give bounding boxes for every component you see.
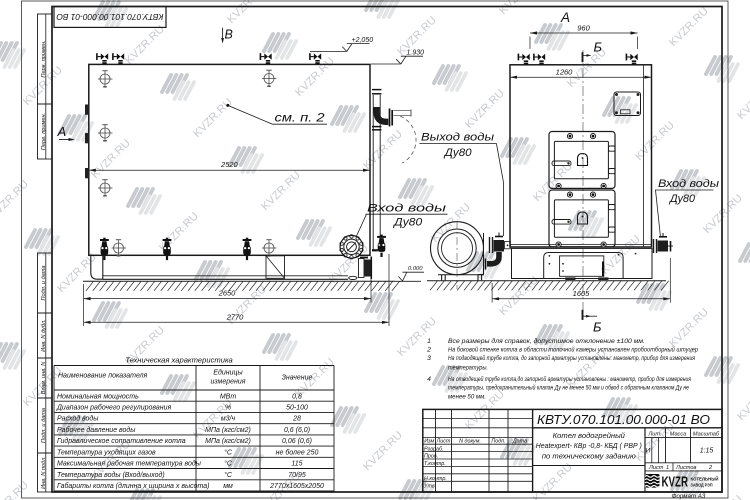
svg-text:Б: Б xyxy=(594,40,603,55)
svg-text:0,8: 0,8 xyxy=(292,393,302,400)
svg-text:+2,050: +2,050 xyxy=(352,37,374,44)
svg-text:Лист: Лист xyxy=(436,439,451,445)
svg-text:МПа (кгс/см2): МПа (кгс/см2) xyxy=(205,427,251,434)
svg-text:А: А xyxy=(57,124,67,139)
svg-text:Дата: Дата xyxy=(512,439,527,445)
svg-text:KVZR: KVZR xyxy=(662,475,689,491)
svg-text:Разраб.: Разраб. xyxy=(424,446,444,452)
svg-text:2: 2 xyxy=(426,347,431,354)
svg-text:Инв. N подл.: Инв. N подл. xyxy=(41,456,47,489)
svg-text:50-100: 50-100 xyxy=(286,405,308,412)
svg-text:Листов: Листов xyxy=(675,465,696,471)
svg-text:0,06 (0,6): 0,06 (0,6) xyxy=(282,438,312,445)
svg-text:мм: мм xyxy=(223,483,233,490)
svg-text:1: 1 xyxy=(427,338,431,345)
svg-text:Подп. и дата: Подп. и дата xyxy=(41,408,47,443)
svg-text:Изм: Изм xyxy=(424,439,434,445)
svg-text:Максимальная рабочая температу: Максимальная рабочая температура воды xyxy=(57,460,202,468)
svg-text:115: 115 xyxy=(291,461,302,468)
svg-text:Перв. примен.: Перв. примен. xyxy=(41,40,47,77)
svg-text:Габариты котла (длинна х ширин: Габариты котла (длинна х ширина х высота… xyxy=(57,482,210,490)
svg-text:Лит.: Лит. xyxy=(647,431,661,437)
svg-text:Б: Б xyxy=(593,320,602,335)
svg-text:Масштаб: Масштаб xyxy=(693,431,720,437)
svg-text:КВТУ.070.101.00.000-01 ВО: КВТУ.070.101.00.000-01 ВО xyxy=(56,12,164,21)
svg-text:N докум.: N докум. xyxy=(459,439,481,445)
svg-text:Подп. и дата: Подп. и дата xyxy=(41,265,47,300)
svg-text:0,6 (6,0): 0,6 (6,0) xyxy=(284,427,310,434)
svg-text:1.930: 1.930 xyxy=(407,50,425,57)
svg-text:Лист: Лист xyxy=(648,465,664,471)
svg-text:2770: 2770 xyxy=(226,312,245,321)
svg-text:Все размеры для справок, допус: Все размеры для справок, допустимое откл… xyxy=(448,337,645,345)
svg-text:На подводящей трубе котла, д: На подводящей трубе котла, до запорной а… xyxy=(448,354,695,362)
svg-text:°С: °С xyxy=(224,471,233,479)
svg-text:КВТУ.070.101.00.000-01 ВО: КВТУ.070.101.00.000-01 ВО xyxy=(537,412,710,427)
svg-text:70/95: 70/95 xyxy=(288,472,306,479)
svg-text:Рабочее давление воды: Рабочее давление воды xyxy=(57,426,136,434)
svg-text:Т.контр.: Т.контр. xyxy=(424,461,446,467)
svg-text:см. п. 2: см. п. 2 xyxy=(275,113,326,125)
svg-text:Формат А3: Формат А3 xyxy=(672,493,706,500)
svg-text:1:15: 1:15 xyxy=(700,448,714,455)
svg-text:Взам. инв. N: Взам. инв. N xyxy=(41,361,47,395)
svg-text:2770х1605х2050: 2770х1605х2050 xyxy=(269,483,324,490)
svg-text:Ду80: Ду80 xyxy=(668,193,696,205)
svg-text:1: 1 xyxy=(666,465,669,471)
svg-text:Подп.: Подп. xyxy=(491,439,505,445)
svg-text:На боковой стенке котла в обла: На боковой стенке котла в области топочн… xyxy=(448,346,698,354)
svg-text:Выход воды: Выход воды xyxy=(421,132,494,144)
svg-text:КОТЕЛЬНЫЙ: КОТЕЛЬНЫЙ xyxy=(691,475,719,482)
svg-text:Перв. примен.: Перв. примен. xyxy=(41,113,47,150)
svg-text:Вход воды: Вход воды xyxy=(658,178,719,190)
svg-text:1605: 1605 xyxy=(573,289,591,298)
svg-text:4: 4 xyxy=(427,376,431,383)
svg-text:м3/ч: м3/ч xyxy=(221,416,236,423)
svg-text:по техническому заданию: по техническому заданию xyxy=(542,451,636,460)
svg-text:Диапазон рабочего регулировани: Диапазон рабочего регулирования xyxy=(56,404,172,412)
svg-text:И: И xyxy=(646,448,651,455)
svg-text:Значение: Значение xyxy=(282,375,313,382)
svg-text:°С: °С xyxy=(224,460,233,468)
svg-text:температуры, предохранительный: температуры, предохранительный клапан Ду… xyxy=(448,384,689,392)
svg-text:3: 3 xyxy=(427,355,431,362)
svg-text:Утв.: Утв. xyxy=(423,483,436,489)
svg-text:Температура воды (Вход/выход): Температура воды (Вход/выход) xyxy=(57,471,165,479)
svg-text:Котел водогрейный: Котел водогрейный xyxy=(553,431,626,440)
svg-text:Расход воды: Расход воды xyxy=(57,415,99,423)
svg-text:Н.контр.: Н.контр. xyxy=(424,476,447,482)
svg-text:2520: 2520 xyxy=(220,160,239,169)
svg-text:1260: 1260 xyxy=(556,67,574,76)
svg-text:Инв. N дубл.: Инв. N дубл. xyxy=(41,319,47,351)
svg-text:Масса: Масса xyxy=(670,431,687,437)
svg-text:менее 50 мм.: менее 50 мм. xyxy=(448,393,486,400)
svg-text:А: А xyxy=(560,10,570,25)
svg-text:Техническая характеристика: Техническая характеристика xyxy=(125,356,233,365)
svg-text:температуры.: температуры. xyxy=(448,364,488,371)
svg-text:Ду80: Ду80 xyxy=(392,217,423,229)
svg-text:измерения: измерения xyxy=(210,379,245,386)
svg-text:На отводящей трубе котла,до за: На отводящей трубе котла,до запорной арм… xyxy=(448,375,691,383)
svg-text:В: В xyxy=(225,28,233,42)
svg-text:МПа (кгс/см2): МПа (кгс/см2) xyxy=(205,438,251,445)
svg-text:ЗАВОД РЭП: ЗАВОД РЭП xyxy=(691,483,713,488)
svg-text:Heatexpert- КВр -0,8- КБД ( РВ: Heatexpert- КВр -0,8- КБД ( РВР ) xyxy=(536,441,642,450)
svg-text:Температура уходящих газов: Температура уходящих газов xyxy=(57,448,156,456)
svg-text:2650: 2650 xyxy=(218,289,237,298)
svg-text:Единицы: Единицы xyxy=(213,369,243,377)
svg-text:960: 960 xyxy=(577,23,590,32)
svg-text:Пров.: Пров. xyxy=(424,454,438,460)
svg-text:Наименование показателя: Наименование показателя xyxy=(58,373,148,380)
svg-text:Вход воды: Вход воды xyxy=(367,203,446,215)
svg-text:Гидравлическое сопративление к: Гидравлическое сопративление котла xyxy=(57,437,186,445)
svg-text:МВт: МВт xyxy=(220,393,237,400)
svg-text:не более 250: не более 250 xyxy=(276,448,319,456)
svg-text:Ду80: Ду80 xyxy=(442,147,472,159)
svg-text:%: % xyxy=(225,405,231,412)
svg-text:°С: °С xyxy=(224,448,233,456)
svg-text:28: 28 xyxy=(292,416,301,423)
svg-text:0.000: 0.000 xyxy=(408,266,423,272)
svg-text:Номинальная мощность: Номинальная мощность xyxy=(57,393,139,400)
